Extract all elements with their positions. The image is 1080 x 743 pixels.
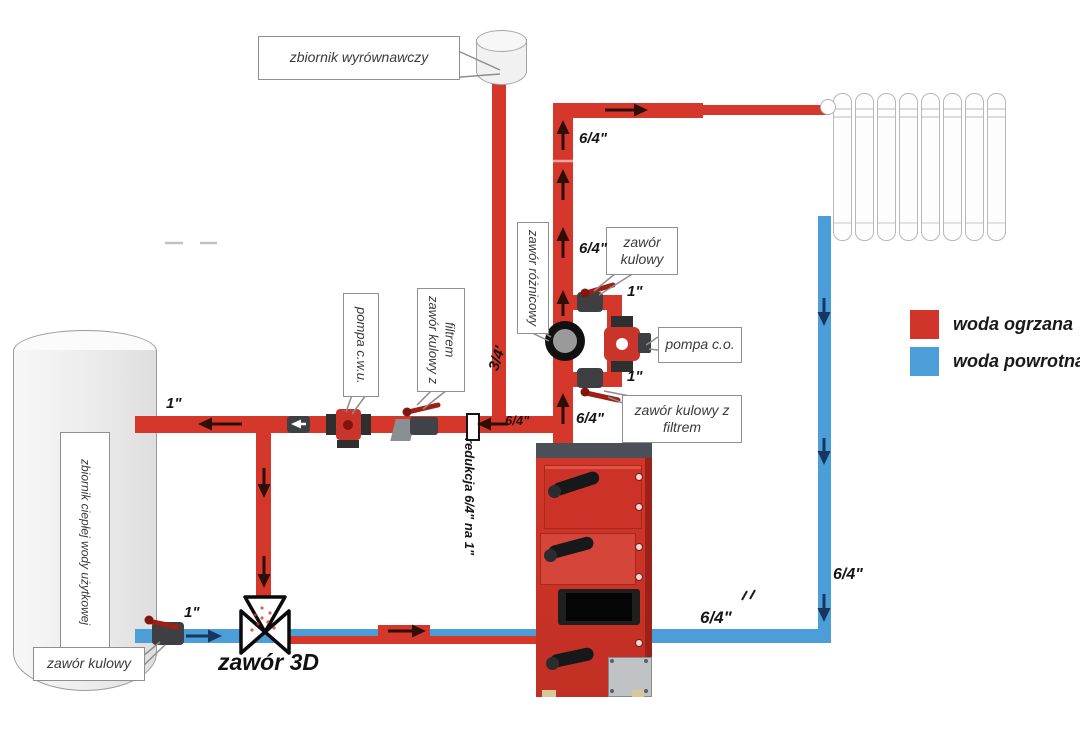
- diff-valve-label-text: zawór różnicowy: [525, 230, 541, 326]
- expansion-tank-callout: zbiornik wyrównawczy: [258, 36, 460, 80]
- tank-ball-valve-label-text: zawór kulowy: [47, 655, 131, 673]
- pipe-size-return-right: 6/4": [833, 566, 863, 584]
- pipe-size-dhw-mid: 6/4": [505, 413, 529, 428]
- pipe-size-riser-top: 6/4": [579, 130, 607, 147]
- legend-return-swatch: [910, 347, 939, 376]
- tank-ball-valve-callout: zawór kulowy: [33, 647, 145, 681]
- pipe-size-tank-return: 1": [184, 604, 199, 621]
- co-pump-label-text: pompa c.o.: [665, 336, 734, 354]
- pipe-size-return-bottom: 6/4": [700, 608, 732, 628]
- dhw-tank-label-text: zbiornik ciepłej wody użytkowej: [78, 459, 93, 625]
- ball-valve-label-text: zawór kulowy: [607, 234, 677, 269]
- ball-valve-callout: zawór kulowy: [606, 227, 678, 275]
- valve-3d-label: zawór 3D: [218, 649, 319, 676]
- pipe-size-riser-mid: 6/4": [579, 240, 607, 257]
- heating-system-diagram: zbiornik ciepłej wody użytkowej: [0, 0, 1080, 743]
- legend-hot-label: woda ogrzana: [953, 314, 1073, 335]
- ball-valve-filter-callout: zawór kulowy z filtrem: [417, 288, 465, 392]
- co-pump-callout: pompa c.o.: [658, 327, 742, 363]
- ball-valve-filter-label-text: zawór kulowy z filtrem: [425, 289, 458, 391]
- pipe-size-riser-bottom: 6/4": [576, 410, 604, 427]
- expansion-tank-label-text: zbiornik wyrównawczy: [290, 49, 428, 67]
- boiler-valve-filter-label-text: zawór kulowy z filtrem: [623, 402, 741, 437]
- legend-hot-swatch: [910, 310, 939, 339]
- dhw-pump-label-text: pompa c.w.u.: [353, 307, 369, 384]
- legend-return-label: woda powrotna: [953, 351, 1080, 372]
- diff-valve-callout: zawór różnicowy: [517, 222, 549, 334]
- dhw-pump-callout: pompa c.w.u.: [343, 293, 379, 397]
- dhw-tank-label: zbiornik ciepłej wody użytkowej: [60, 432, 110, 652]
- pipe-size-bypass-bottom: 1": [627, 368, 642, 385]
- pipe-size-dhw-supply: 1": [166, 395, 181, 412]
- pipe-size-bypass-top: 1": [627, 283, 642, 300]
- boiler-valve-filter-callout: zawór kulowy z filtrem: [622, 395, 742, 443]
- reduction-label: redukcja 6/4" na 1": [462, 438, 477, 563]
